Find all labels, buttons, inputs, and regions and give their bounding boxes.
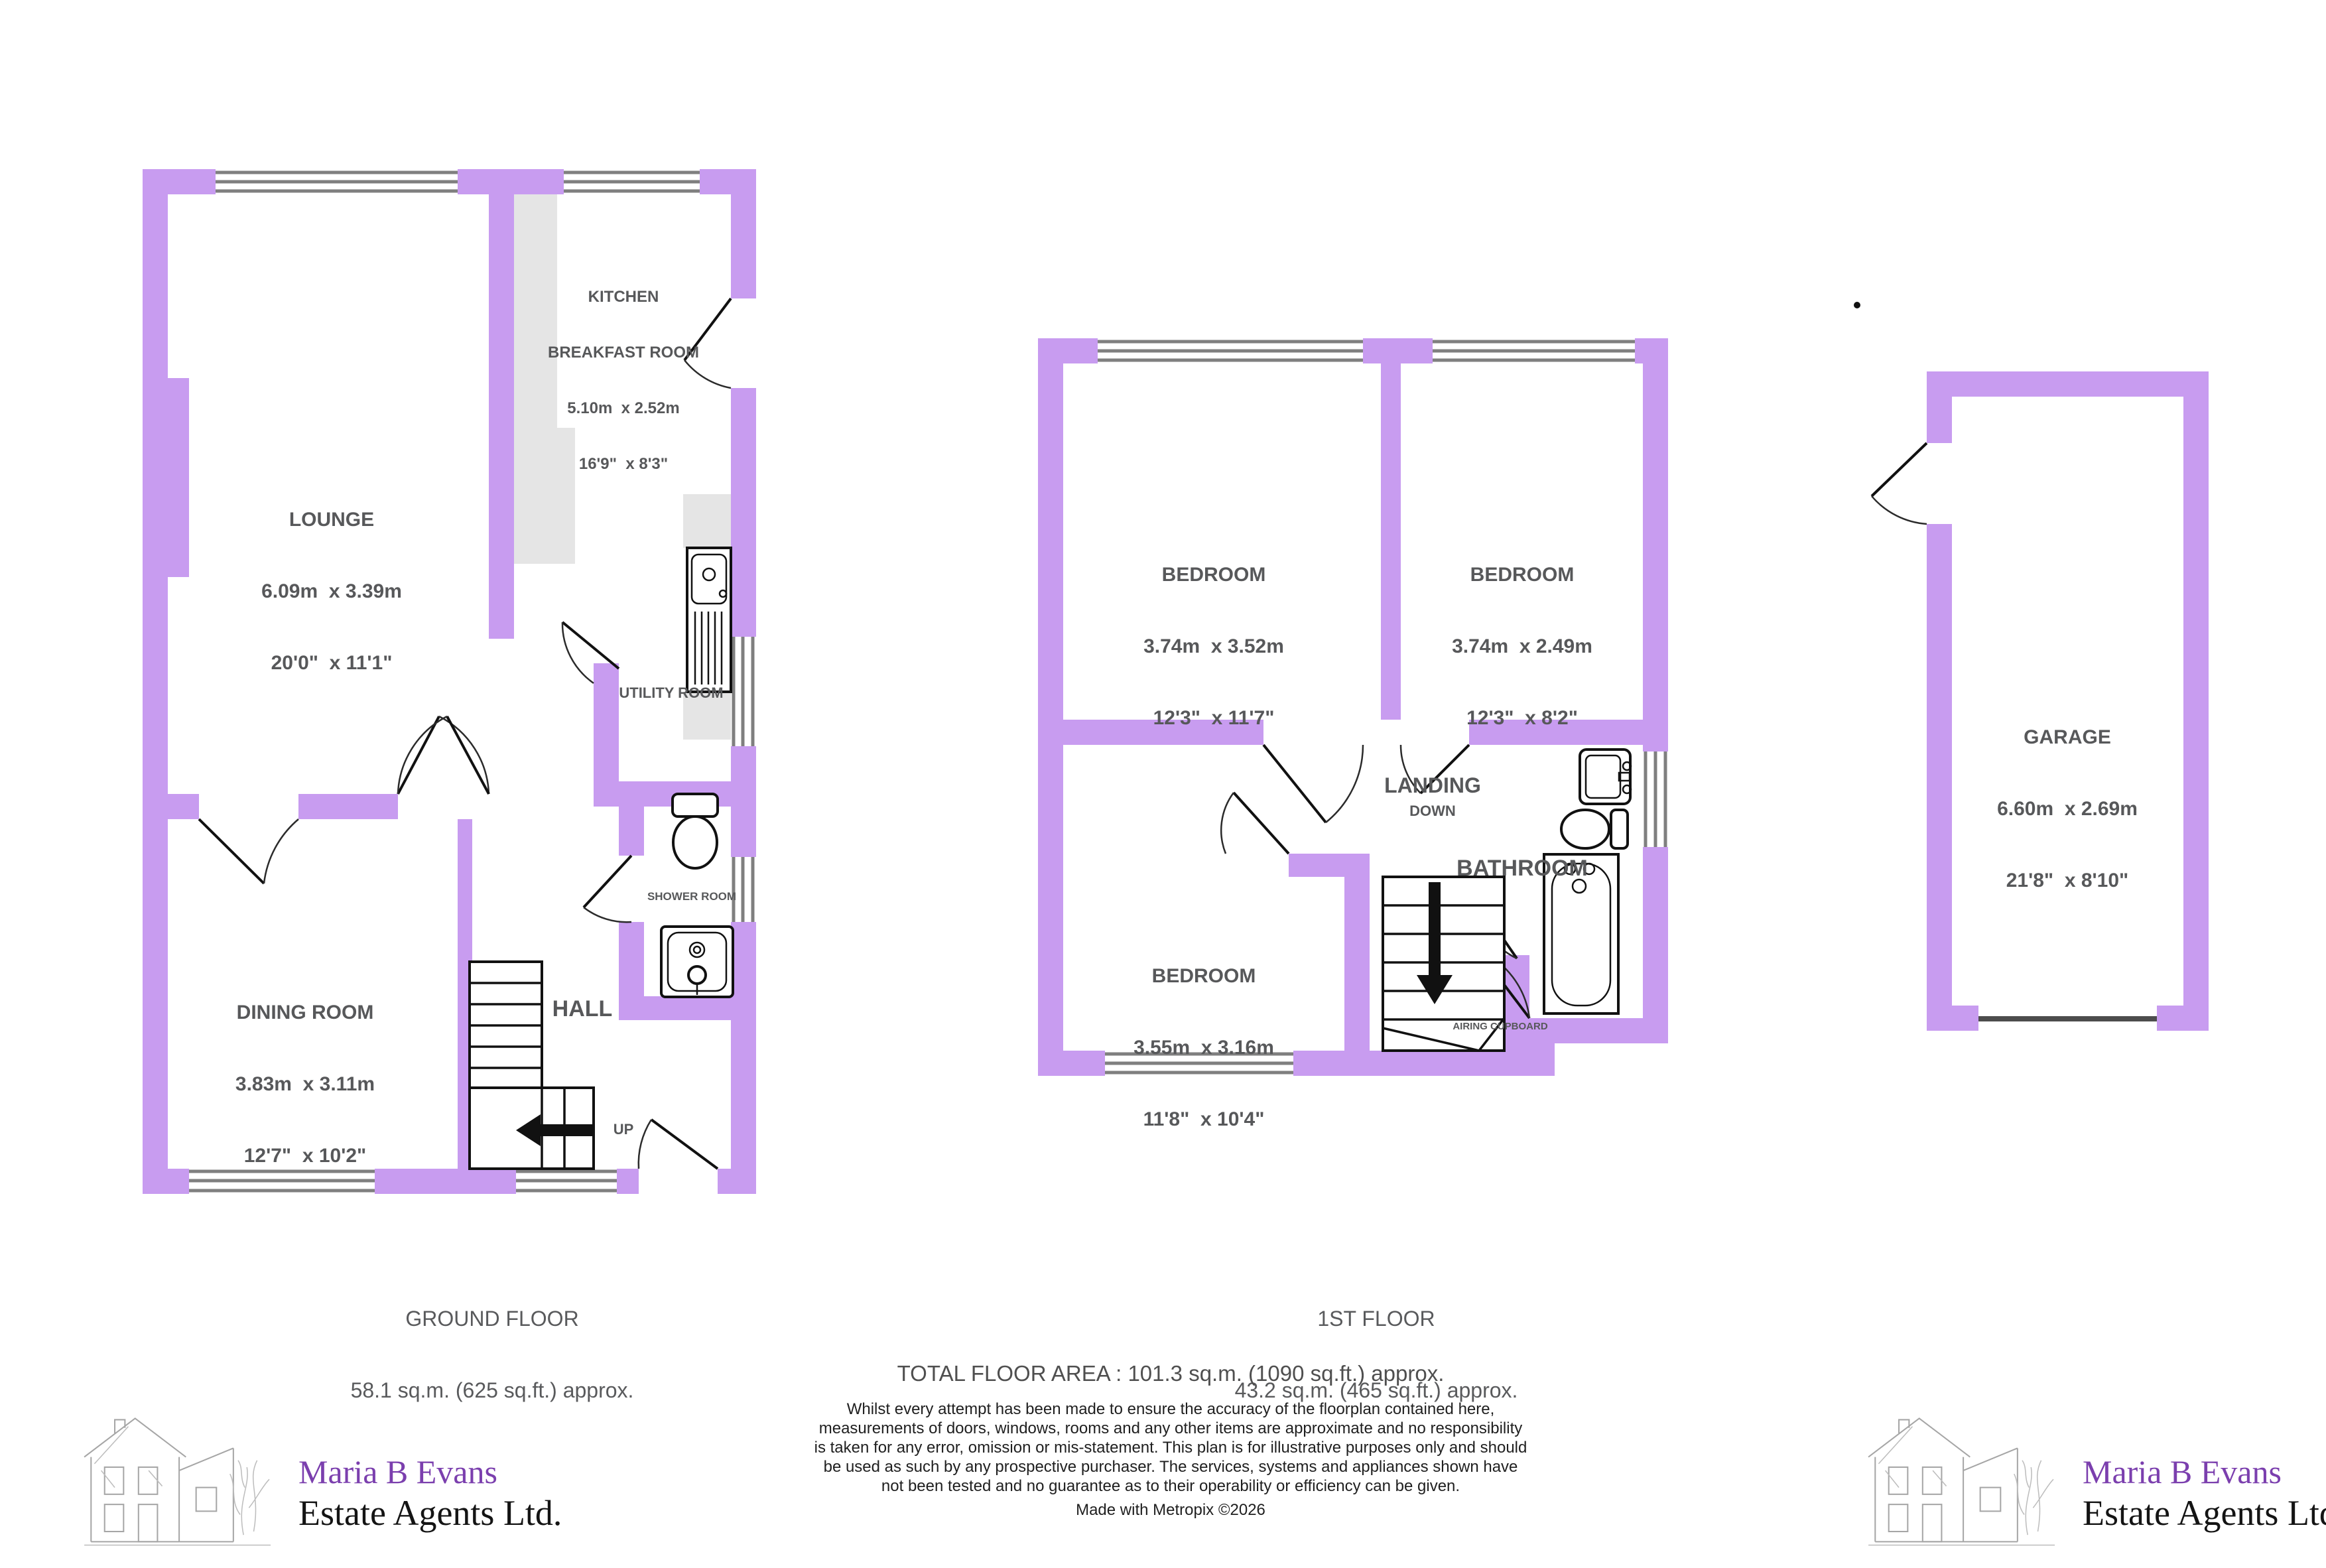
bedroom1-imperial: 12'3" x 11'7" <box>1143 706 1284 730</box>
floorplan-drawing <box>0 0 2326 1568</box>
first-floor-caption-title: 1ST FLOOR <box>1235 1307 1518 1331</box>
lounge-name: LOUNGE <box>261 508 402 532</box>
bedroom3-label: BEDROOM 3.55m x 3.16m 11'8" x 10'4" <box>1133 917 1274 1179</box>
garage-metric: 6.60m x 2.69m <box>1997 797 2138 821</box>
utility-room-label: UTILITY ROOM <box>619 685 723 702</box>
kitchen-metric: 5.10m x 2.52m <box>548 399 699 418</box>
shower-tray <box>661 927 733 997</box>
disclaimer-text: Whilst every attempt has been made to en… <box>812 1400 1529 1496</box>
garage-side-door <box>1872 443 1927 524</box>
garage-label: GARAGE 6.60m x 2.69m 21'8" x 8'10" <box>1997 678 2138 941</box>
brand-name-right: Maria B Evans <box>2083 1453 2282 1491</box>
kitchen-name-2: BREAKFAST ROOM <box>548 344 699 362</box>
bedroom3-name: BEDROOM <box>1133 964 1274 988</box>
agency-logo-right: Maria B Evans Estate Agents Ltd. <box>1850 1406 2315 1562</box>
dining-metric: 3.83m x 3.11m <box>235 1073 375 1096</box>
stairs-up <box>470 962 594 1169</box>
bedroom2-name: BEDROOM <box>1452 563 1592 587</box>
shower-room-toilet <box>673 794 718 868</box>
shower-room-label: SHOWER ROOM <box>647 890 736 903</box>
garage-imperial: 21'8" x 8'10" <box>1997 869 2138 893</box>
landing-label: LANDING <box>1384 773 1481 798</box>
garage-door <box>1978 1016 2157 1021</box>
ground-floor-caption-area: 58.1 sq.m. (625 sq.ft.) approx. <box>351 1378 634 1402</box>
lounge-metric: 6.09m x 3.39m <box>261 580 402 604</box>
floorplan-canvas: LOUNGE 6.09m x 3.39m 20'0" x 11'1" KITCH… <box>0 0 2326 1568</box>
garage-name: GARAGE <box>1997 726 2138 750</box>
agency-logo-left: Maria B Evans Estate Agents Ltd. <box>66 1406 531 1562</box>
brand-name-left: Maria B Evans <box>298 1453 497 1491</box>
brand-subtitle-left: Estate Agents Ltd. <box>298 1492 562 1534</box>
airing-cupboard-label: AIRING CUPBOARD <box>1453 1021 1547 1033</box>
bathroom-toilet <box>1561 810 1628 848</box>
ground-floor-caption-title: GROUND FLOOR <box>351 1307 634 1331</box>
house-sketch-icon <box>66 1406 285 1562</box>
bedroom3-metric: 3.55m x 3.16m <box>1133 1036 1274 1060</box>
bedroom2-imperial: 12'3" x 8'2" <box>1452 706 1592 730</box>
kitchen-name-1: KITCHEN <box>548 288 699 306</box>
bedroom3-imperial: 11'8" x 10'4" <box>1133 1108 1274 1132</box>
bedroom1-metric: 3.74m x 3.52m <box>1143 635 1284 659</box>
down-label: DOWN <box>1409 803 1456 820</box>
bedroom2-metric: 3.74m x 2.49m <box>1452 635 1592 659</box>
lounge-imperial: 20'0" x 11'1" <box>261 651 402 675</box>
total-floor-area: TOTAL FLOOR AREA : 101.3 sq.m. (1090 sq.… <box>897 1361 1445 1386</box>
bedroom1-label: BEDROOM 3.74m x 3.52m 12'3" x 11'7" <box>1143 515 1284 778</box>
lounge-label: LOUNGE 6.09m x 3.39m 20'0" x 11'1" <box>261 460 402 723</box>
up-label: UP <box>614 1121 634 1138</box>
kitchen-label: KITCHEN BREAKFAST ROOM 5.10m x 2.52m 16'… <box>548 251 699 511</box>
kitchen-sink <box>687 548 731 692</box>
hall-label: HALL <box>552 996 613 1021</box>
bedroom2-label: BEDROOM 3.74m x 2.49m 12'3" x 8'2" <box>1452 515 1592 778</box>
dining-room-label: DINING ROOM 3.83m x 3.11m 12'7" x 10'2" <box>235 953 375 1216</box>
house-sketch-icon <box>1850 1406 2069 1562</box>
metropix-credit: Made with Metropix ©2026 <box>1076 1500 1265 1520</box>
kitchen-imperial: 16'9" x 8'3" <box>548 455 699 474</box>
dining-name: DINING ROOM <box>235 1001 375 1025</box>
brand-subtitle-right: Estate Agents Ltd. <box>2083 1492 2326 1534</box>
dining-imperial: 12'7" x 10'2" <box>235 1144 375 1168</box>
bedroom1-name: BEDROOM <box>1143 563 1284 587</box>
bathroom-label: BATHROOM <box>1456 856 1588 881</box>
stray-mark <box>1854 302 1860 308</box>
